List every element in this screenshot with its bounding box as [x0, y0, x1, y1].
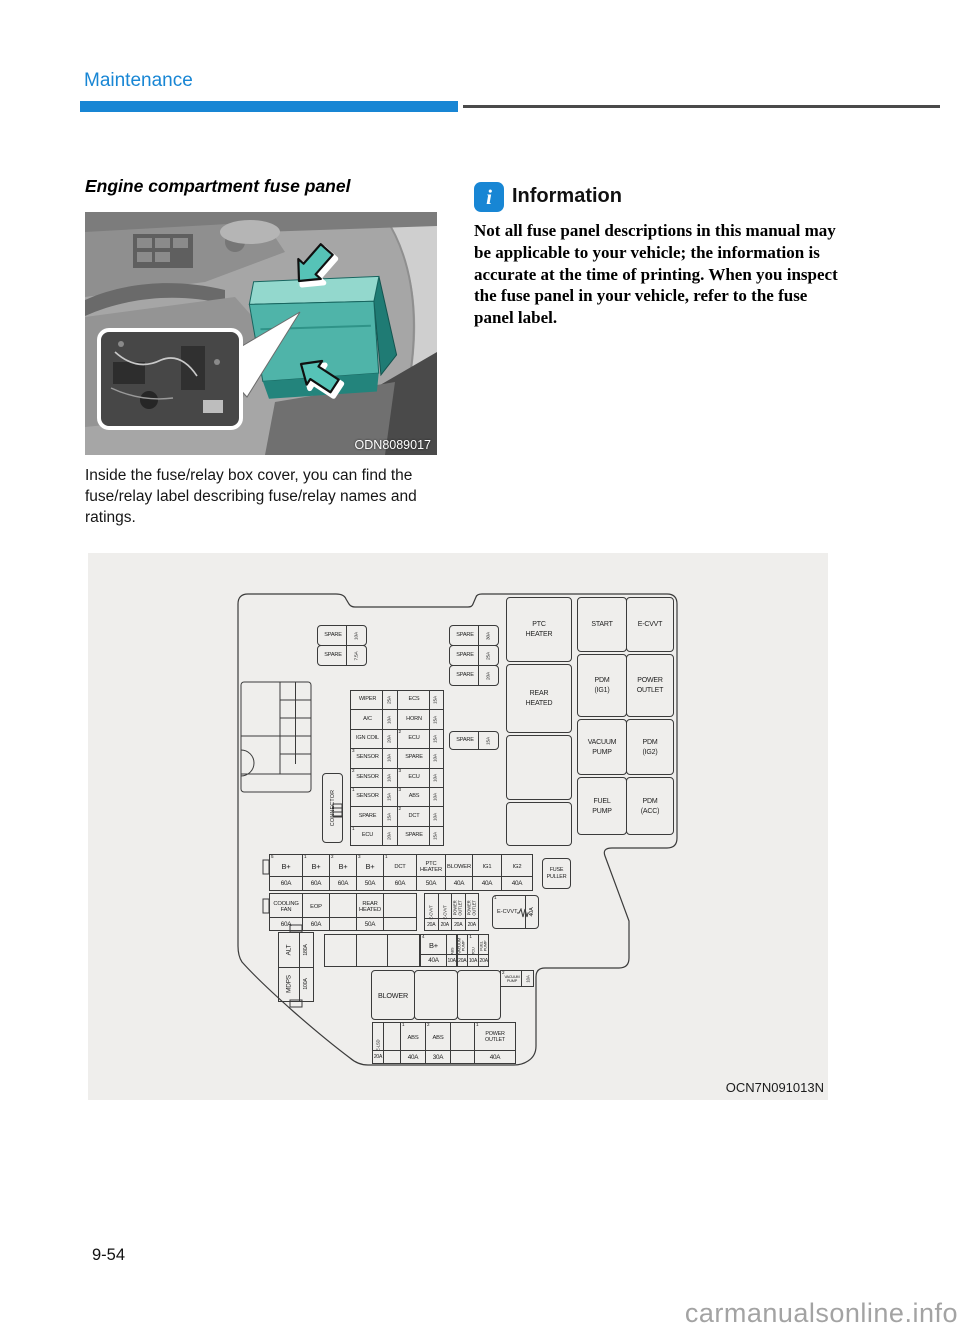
- relay-label-line: PDM: [643, 798, 658, 805]
- fuse-amp-cell: 15A: [429, 827, 444, 845]
- fuse-cell: DCT10A2: [397, 806, 445, 826]
- fuse-panel-diagram: SPARE10ASPARE7.5ASPARE30ASPARE25ASPARE20…: [230, 588, 698, 1068]
- relay-label: VACUUMPUMP: [578, 720, 626, 774]
- fuse-puller-label: FUSEPULLER: [543, 859, 570, 888]
- fuse-label: TCU: [470, 937, 475, 955]
- fuse-index: 2: [427, 1023, 430, 1028]
- fuse-cell: MDPS100A: [278, 967, 314, 1003]
- fuse-label: E-CVVT: [442, 896, 447, 919]
- fuse-puller-line: FUSE: [550, 867, 564, 873]
- fuse-amp: 10A: [387, 754, 392, 762]
- relay-label-line: PDM: [595, 677, 610, 684]
- fuse-amp: 60A: [330, 876, 356, 890]
- fuse-label: SENSOR: [351, 788, 384, 806]
- relay-box: PDM(ACC): [626, 777, 674, 835]
- fuse-label: VACUUMPUMP: [458, 937, 467, 955]
- fuse-label: ABS: [449, 937, 454, 955]
- fuse-amp: 40A: [475, 1050, 515, 1063]
- fuse-index: 1: [352, 827, 355, 832]
- fuse-cell: COOLING FAN60A: [269, 893, 303, 931]
- fuse-label: E-CVVT: [497, 909, 518, 915]
- fuse-amp: 60A: [270, 876, 302, 890]
- fuse-puller-line: PULLER: [547, 874, 567, 880]
- section-title: Maintenance: [84, 70, 193, 92]
- relay-box: VACUUMPUMP: [577, 719, 627, 775]
- fuse-label: E-CVVT: [429, 896, 434, 919]
- fuse-label: IGN COIL: [351, 730, 384, 748]
- relay-label-line: FUEL: [593, 798, 610, 805]
- fuse-label: SPARE: [450, 732, 480, 749]
- fuse-cell: HORN15A: [397, 709, 445, 729]
- empty-box: [457, 970, 501, 1020]
- fuse-label: FUELPUMP: [479, 937, 488, 955]
- fuse-cell: SPARE20A: [449, 665, 499, 686]
- header-accent-bar: [80, 101, 458, 112]
- relay-label: START: [578, 598, 626, 651]
- fuse-amp: 20A: [425, 918, 438, 930]
- photo-code: ODN8089017: [85, 438, 431, 452]
- fuse-label: SENSOR: [351, 749, 384, 767]
- fuse-index: 4: [422, 935, 425, 940]
- fuse-cell: ABS10A3: [397, 787, 445, 807]
- fuse-amp-cell: 15A: [429, 710, 444, 728]
- fuse-label-line: OUTLET: [458, 896, 463, 919]
- fuse-cell: B+60A1: [302, 854, 330, 891]
- fuse-index: 3: [399, 788, 402, 793]
- fuse-amp: 30A: [486, 632, 491, 640]
- fuse-label: MDPS: [286, 975, 293, 993]
- fuse-amp: 50A: [357, 917, 383, 930]
- fuse-cell: 1POWEROUTLET40A: [474, 1022, 516, 1064]
- fuse-cell: [383, 893, 417, 931]
- page-heading: Engine compartment fuse panel: [85, 176, 455, 197]
- fuse-amp-cell: 15A: [382, 788, 397, 806]
- fuse-amp-cell: 180A: [299, 933, 313, 967]
- fuse-label: POWEROUTLET: [454, 896, 463, 919]
- fuse-index: 5: [271, 855, 274, 860]
- fuse-amp: 15A: [434, 735, 439, 743]
- fuse-label: ECU: [398, 730, 431, 748]
- fuse-label: ECS: [398, 691, 431, 709]
- relay-label-line: (IG2): [643, 749, 658, 756]
- figure-panel: SPARE10ASPARE7.5ASPARE30ASPARE25ASPARE20…: [88, 553, 828, 1100]
- relay-label-line: REAR: [530, 690, 549, 697]
- fuse-cell: SPARE15A: [350, 806, 398, 826]
- relay-label: [507, 803, 571, 845]
- fuse-cell: ABS10A: [446, 934, 457, 967]
- fuse-amp: 20A: [387, 832, 392, 840]
- fuse-index: 2: [331, 855, 334, 860]
- fuse-amp-cell: 25A: [478, 646, 498, 665]
- fuse-cell: SPARE15A: [397, 826, 445, 846]
- relay-label-line: PUMP: [592, 808, 611, 815]
- empty-cell: [356, 934, 389, 967]
- fuse-index: 2: [399, 807, 402, 812]
- fuse-label: ABS: [398, 788, 431, 806]
- connector-box: CONNECTOR: [322, 773, 343, 843]
- relay-label-line: OUTLET: [637, 687, 663, 694]
- fuse-cell: IG140A: [472, 854, 502, 891]
- fuse-amp-cell: 15A: [429, 691, 444, 709]
- fuse-label-line: OUTLET: [485, 1038, 505, 1044]
- fuse-index: 3: [358, 855, 361, 860]
- fuse-cell: E-CVVT20A: [424, 893, 439, 931]
- fuse-amp: 20A: [458, 954, 467, 966]
- watermark: carmanualsonline.info: [685, 1298, 958, 1329]
- fuse-cell: EOP60A: [302, 893, 330, 931]
- fuse-amp-cell: 10A: [429, 807, 444, 825]
- fuse-amp-cell: 10A: [382, 769, 397, 787]
- fuse-cell: TCU10A1: [467, 934, 478, 967]
- fuse-amp: 20A: [466, 918, 479, 930]
- blower-label: BLOWER: [372, 971, 414, 1019]
- fuse-index: 1: [385, 855, 388, 860]
- fuse-amp: 10A: [447, 954, 456, 966]
- fuse-cell: ECU20A1: [350, 826, 398, 846]
- relay-label: E-CVVT: [627, 598, 673, 651]
- engine-compartment-photo: ODN8089017: [85, 212, 437, 455]
- relay-label: FUELPUMP: [578, 778, 626, 834]
- fuse-cell: SPARE10A: [317, 625, 367, 646]
- fuse-amp: 10A: [387, 774, 392, 782]
- relay-box: PTCHEATER: [506, 597, 572, 662]
- fuse-amp: 60A: [270, 917, 302, 930]
- empty-box: [414, 970, 458, 1020]
- relay-label-line: PUMP: [592, 749, 611, 756]
- fuse-amp-cell: 25A: [382, 691, 397, 709]
- relay-label: [507, 736, 571, 799]
- manual-page: Maintenance Engine compartment fuse pane…: [0, 0, 960, 1337]
- fuse-label: DCT: [398, 807, 431, 825]
- fuse-cell: SENSOR10A3: [350, 748, 398, 768]
- blower-box: BLOWER: [371, 970, 415, 1020]
- fuse-label: A/C: [351, 710, 384, 728]
- fuse-label: ECU: [351, 827, 384, 845]
- fuse-label: SENSOR: [351, 769, 384, 787]
- fuse-amp: [330, 917, 356, 930]
- connector-label: CONNECTOR: [330, 790, 336, 826]
- fuse-amp: 10A: [434, 774, 439, 782]
- fuse-amp: 10A: [525, 975, 530, 982]
- fuse-label: [451, 1023, 474, 1053]
- figure-code: OCN7N091013N: [88, 1080, 824, 1095]
- relay-label: POWEROUTLET: [627, 655, 673, 716]
- fuse-cell: IGN COIL20A: [350, 729, 398, 749]
- fuse-amp-cell: 40A: [525, 896, 538, 928]
- fuse-label: WIPER: [351, 691, 384, 709]
- fuse-amp: 40A: [473, 876, 501, 890]
- fuse-cell: SPARE25A: [449, 645, 499, 666]
- fuse-label: ABS: [401, 1023, 425, 1053]
- fuse-cell: B+60A2: [329, 854, 357, 891]
- fuse-label: SPARE: [450, 626, 480, 645]
- relay-box: PDM(IG1): [577, 654, 627, 717]
- fuse-amp: 40A: [502, 876, 532, 890]
- fuse-amp-cell: 10A: [382, 710, 397, 728]
- fuse-cell: 2VACUUMPUMP10A: [500, 970, 534, 987]
- fuse-cell: ECU15A2: [397, 729, 445, 749]
- fuse-amp: 10A: [354, 632, 359, 640]
- fuse-label: VACUUMPUMP: [501, 971, 523, 986]
- fuse-cell: SENSOR10A2: [350, 768, 398, 788]
- fuse-amp: 15A: [434, 716, 439, 724]
- relay-box: E-CVVT: [626, 597, 674, 652]
- relay-box: PDM(IG2): [626, 719, 674, 775]
- fuse-label: SPARE: [318, 626, 348, 645]
- fuse-cell: IG240A: [501, 854, 533, 891]
- relay-label-line: HEATED: [526, 700, 553, 707]
- fuse-cell: WIPER25A: [350, 690, 398, 710]
- fuse-label-line: PUMP: [484, 937, 488, 955]
- fuse-label: SPARE: [398, 827, 431, 845]
- relay-box: [506, 735, 572, 800]
- relay-label-line: (IG1): [595, 687, 610, 694]
- fuse-cell: SENSOR15A1: [350, 787, 398, 807]
- relay-label: PDM(IG1): [578, 655, 626, 716]
- fuse-amp-cell: 7.5A: [346, 646, 366, 665]
- fuse-cell: FUELPUMP20A: [478, 934, 489, 967]
- fuse-label: HORN: [398, 710, 431, 728]
- fuse-label-cell: MDPS: [279, 968, 300, 1002]
- fuse-cell: [383, 1022, 401, 1064]
- fuse-label-line: PUMP: [462, 937, 466, 955]
- fuse-amp: 15A: [434, 696, 439, 704]
- fuse-cell: SPARE7.5A: [317, 645, 367, 666]
- fuse-cell: ECU10A3: [397, 768, 445, 788]
- relay-label-line: E-CVVT: [638, 621, 662, 628]
- fuse-cell: ECS15A: [397, 690, 445, 710]
- fuse-amp: 180A: [303, 944, 309, 955]
- fuse-amp: [384, 1050, 400, 1063]
- fuse-cell: ALT180A: [278, 932, 314, 968]
- fuse-amp: 10A: [434, 793, 439, 801]
- relay-label: PDM(ACC): [627, 778, 673, 834]
- fuse-index: 3: [399, 769, 402, 774]
- fuse-cell: PTC HEATER50A: [416, 854, 446, 891]
- fuse-cell: [329, 893, 357, 931]
- information-title: Information: [512, 185, 622, 208]
- fuse-amp-cell: 15A: [478, 732, 498, 749]
- fuse-label-line: PUMP: [507, 979, 517, 983]
- fuse-cell: SPARE15A: [449, 731, 499, 750]
- fuse-amp: 20A: [387, 735, 392, 743]
- fuse-amp: 40A: [529, 908, 535, 917]
- relay-label-line: VACUUM: [588, 739, 617, 746]
- fuse-amp: [384, 917, 416, 930]
- relay-label: PDM(IG2): [627, 720, 673, 774]
- fuse-amp-cell: 10A: [521, 971, 533, 986]
- fuse-cell: VACUUMPUMP20A: [457, 934, 468, 967]
- fuse-label: ABS: [426, 1023, 450, 1053]
- page-number: 9-54: [92, 1246, 125, 1265]
- fuse-cell: BLOWER40A: [445, 854, 473, 891]
- fuse-cell: POWEROUTLET20A: [451, 893, 466, 931]
- fuse-label: ECU: [398, 769, 431, 787]
- fuse-amp: 10A: [434, 813, 439, 821]
- fuse-label: SPARE: [351, 807, 384, 825]
- fuse-amp: 20A: [452, 918, 465, 930]
- fuse-cell: A/C10A: [350, 709, 398, 729]
- fuse-amp-cell: 10A: [429, 788, 444, 806]
- fuse-amp-cell: 10A: [382, 749, 397, 767]
- relay-label-line: PTC: [532, 621, 545, 628]
- relay-box: POWEROUTLET: [626, 654, 674, 717]
- fuse-label: ALT: [286, 944, 293, 955]
- empty-cell: [387, 934, 420, 967]
- fuse-amp: 20A: [486, 672, 491, 680]
- fuse-amp: 60A: [303, 876, 329, 890]
- relay-box: FUELPUMP: [577, 777, 627, 835]
- fuse-index: 1: [469, 935, 472, 940]
- fuse-amp: 20A: [439, 918, 452, 930]
- relay-label-line: HEATER: [526, 631, 553, 638]
- fuse-index: 2: [399, 730, 402, 735]
- fuse-amp: 20A: [479, 954, 488, 966]
- fuse-index: 1: [352, 788, 355, 793]
- fuse-cell: REAR HEATED50A: [356, 893, 384, 931]
- fuse-label: E-LSD: [376, 1025, 381, 1051]
- fuse-amp: 50A: [417, 876, 445, 890]
- relay-label: REARHEATED: [507, 665, 571, 732]
- fuse-label-cell: ALT: [279, 933, 300, 967]
- fuse-amp-cell: 10A: [429, 749, 444, 767]
- fuse-amp: 40A: [421, 954, 446, 966]
- fuse-amp-cell: 10A: [429, 769, 444, 787]
- fuse-label: POWEROUTLET: [475, 1023, 515, 1052]
- relay-label-line: PDM: [643, 739, 658, 746]
- fuse-cell: SPARE10A: [397, 748, 445, 768]
- fuse-amp: 50A: [357, 876, 383, 890]
- blower-line: BLOWER: [378, 991, 408, 1000]
- photo-illustration: [85, 212, 437, 455]
- fuse-amp: 40A: [446, 876, 472, 890]
- fuse-amp: 15A: [434, 832, 439, 840]
- relay-label-line: POWER: [637, 677, 662, 684]
- fuse-amp: 15A: [387, 813, 392, 821]
- relay-box: REARHEATED: [506, 664, 572, 733]
- fuse-amp: 60A: [384, 876, 416, 890]
- fuse-label: SPARE: [398, 749, 431, 767]
- fuse-amp-cell: 20A: [478, 666, 498, 685]
- fuse-amp: [451, 1050, 474, 1063]
- ecvvt-fuse-box: 1E-CVVT40A: [492, 895, 539, 929]
- fuse-amp: 40A: [401, 1050, 425, 1063]
- fuse-amp-cell: 30A: [478, 626, 498, 645]
- fuse-index: 1: [402, 1023, 405, 1028]
- fuse-label: [384, 1023, 400, 1053]
- fuse-amp: 10A: [468, 954, 477, 966]
- fuse-amp-cell: 20A: [382, 827, 397, 845]
- fuse-amp-cell: 20A: [382, 730, 397, 748]
- fuse-cell: E-CVVT20A: [438, 893, 453, 931]
- fuse-cell: POWEROUTLET20A: [465, 893, 480, 931]
- fuse-amp-cell: 15A: [429, 730, 444, 748]
- header-rule: [463, 105, 940, 108]
- fuse-amp-cell: 100A: [299, 968, 313, 1002]
- fuse-amp: 25A: [387, 696, 392, 704]
- fuse-amp: 25A: [486, 652, 491, 660]
- fuse-label: SPARE: [318, 646, 348, 665]
- fuse-amp: 20A: [373, 1050, 383, 1063]
- fuse-amp: 10A: [387, 716, 392, 724]
- fuse-amp: 100A: [303, 979, 309, 990]
- fuse-amp-cell: 15A: [382, 807, 397, 825]
- fuse-index: 1: [304, 855, 307, 860]
- fuse-index: 2: [352, 769, 355, 774]
- body-paragraph: Inside the fuse/relay box cover, you can…: [85, 466, 447, 529]
- fuse-label-line: OUTLET: [472, 896, 477, 919]
- relay-box: [506, 802, 572, 846]
- fuse-amp: 60A: [303, 917, 329, 930]
- fuse-index: 3: [352, 749, 355, 754]
- fuse-cell: DCT60A1: [383, 854, 417, 891]
- information-text: Not all fuse panel descriptions in this …: [474, 220, 846, 329]
- fuse-label: POWEROUTLET: [467, 896, 476, 919]
- fuse-amp: 15A: [486, 737, 491, 745]
- fuse-amp-cell: 10A: [346, 626, 366, 645]
- fuse-cell: B+50A3: [356, 854, 384, 891]
- fuse-amp: 15A: [387, 793, 392, 801]
- fuse-cell: ABS30A2: [425, 1022, 451, 1064]
- relay-box: START: [577, 597, 627, 652]
- relay-label: PTCHEATER: [507, 598, 571, 661]
- fuse-label: SPARE: [450, 646, 480, 665]
- fuse-cell: B+40A4: [420, 934, 447, 967]
- fuse-cell: ABS40A1: [400, 1022, 426, 1064]
- fuse-label: SPARE: [450, 666, 480, 685]
- fuse-amp: 30A: [426, 1050, 450, 1063]
- fuse-amp: 7.5A: [354, 651, 359, 660]
- fuse-amp: 10A: [434, 754, 439, 762]
- information-icon: i: [474, 182, 504, 212]
- fuse-puller: FUSEPULLER: [542, 858, 571, 889]
- fuse-cell: B+60A5: [269, 854, 303, 891]
- empty-cell: [324, 934, 357, 967]
- fuse-cell: [450, 1022, 475, 1064]
- relay-label-line: START: [591, 621, 612, 628]
- inset-photo: [99, 330, 241, 428]
- relay-label-line: (ACC): [641, 808, 659, 815]
- fuse-index: 1: [494, 896, 497, 901]
- fuse-cell: SPARE30A: [449, 625, 499, 646]
